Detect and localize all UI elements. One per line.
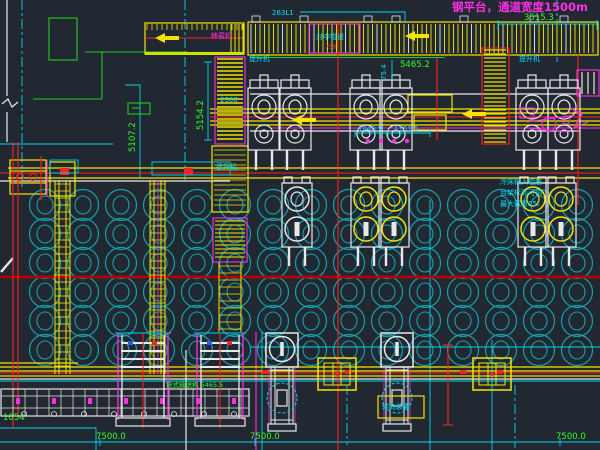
dim-5154-vertical: 5154.2 <box>196 100 206 130</box>
band-mark <box>460 370 466 374</box>
note-line-1: 冷床输入辊道 <box>500 177 542 186</box>
train-mark <box>232 398 236 404</box>
table-dot-blue <box>207 341 212 345</box>
roll-slot <box>531 222 536 236</box>
roll-slot <box>559 222 564 236</box>
note-line-3: 最大载重25t <box>500 199 540 208</box>
label-elevator-3: 提升机 <box>216 162 237 171</box>
label-small-red: 750 <box>325 44 337 51</box>
dim-263L1: 263L1 <box>272 9 294 17</box>
dim-7500-middle: 7500.0 <box>250 432 280 442</box>
train-mark <box>16 398 20 404</box>
dim-7500-left: 7500.0 <box>96 432 126 442</box>
drawing-title: 钢平台，通道宽度1500m <box>452 0 588 14</box>
label-chain-conveyor: 链式输送机 5465.5 <box>166 380 223 389</box>
wheel-dot <box>405 139 409 143</box>
wheel-dot <box>366 139 370 143</box>
roll-slot <box>364 222 369 236</box>
band-mark <box>497 370 503 374</box>
dim-5465: 5465.2 <box>400 60 430 70</box>
dim-1151: 1151.5 <box>394 125 419 133</box>
dim-7500-right: 7500.0 <box>556 432 586 442</box>
dim-1054: 1054 <box>3 413 25 423</box>
cad-canvas[interactable]: 钢平台，通道宽度1500m 3515.3 263L1 5465.2 5154.2… <box>0 0 600 450</box>
model-space-background <box>0 0 600 450</box>
dim-5107-vertical: 5107.2 <box>128 122 138 152</box>
wheel-dot <box>379 139 383 143</box>
dim-1040: 1040.9 <box>358 125 383 133</box>
roll-slot <box>392 222 397 236</box>
cad-viewport: 钢平台，通道宽度1500m 3515.3 263L1 5465.2 5154.2… <box>0 0 600 450</box>
train-mark <box>52 398 56 404</box>
wheel-dot <box>392 139 396 143</box>
label-centering-rollers: 对中辊道 <box>316 32 344 41</box>
label-elevator-1: 提升机 <box>249 54 270 63</box>
dim-3515: 3515.3 <box>524 13 554 23</box>
table-dot-blue <box>128 341 133 345</box>
line-joint-mark <box>60 168 69 175</box>
label-2300: 2300 <box>220 96 238 104</box>
roller-box-pin <box>335 372 339 376</box>
note-line-2: 台架标高可调 <box>500 188 542 197</box>
roll-slot <box>295 222 300 236</box>
line-joint-mark <box>184 168 193 175</box>
label-elevator-2: 提升机 <box>519 54 540 63</box>
band-mark <box>262 370 268 374</box>
label-transfer-machine: 移载机 <box>211 31 232 40</box>
table-dot-red <box>227 341 232 345</box>
train-mark <box>124 398 128 404</box>
label-turn-unit: 转向装置 <box>382 402 410 411</box>
dim-75-vertical: 75.4 <box>380 64 388 80</box>
train-mark <box>88 398 92 404</box>
roller-box-pin <box>490 372 494 376</box>
table-dot-red <box>152 341 157 345</box>
